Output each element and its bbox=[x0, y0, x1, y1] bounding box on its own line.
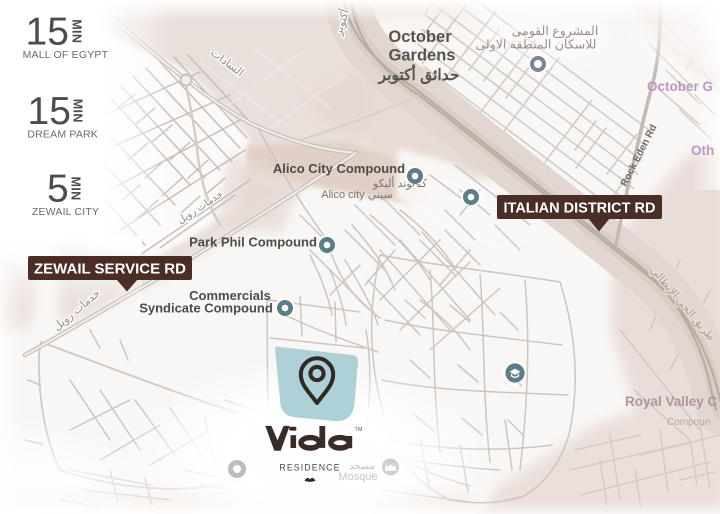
svg-text:October G: October G bbox=[647, 79, 713, 94]
svg-text:5: 5 bbox=[47, 168, 69, 211]
svg-text:15: 15 bbox=[28, 90, 71, 133]
svg-text:October: October bbox=[388, 28, 452, 46]
svg-text:MIN: MIN bbox=[69, 177, 83, 201]
svg-text:15: 15 bbox=[26, 10, 69, 53]
svg-text:MIN: MIN bbox=[69, 19, 83, 43]
svg-text:ZEWAIL CITY: ZEWAIL CITY bbox=[32, 206, 99, 218]
svg-text:Mosque: Mosque bbox=[338, 471, 377, 483]
svg-text:حدائق أكتوبر: حدائق أكتوبر bbox=[378, 63, 460, 85]
svg-text:MIN: MIN bbox=[70, 99, 84, 123]
svg-text:TM: TM bbox=[355, 427, 363, 433]
svg-text:Gardens: Gardens bbox=[389, 47, 456, 65]
svg-text:RESIDENCE: RESIDENCE bbox=[279, 463, 340, 473]
svg-text:ZEWAIL SERVICE RD: ZEWAIL SERVICE RD bbox=[34, 261, 186, 278]
svg-text:ITALIAN DISTRICT RD: ITALIAN DISTRICT RD bbox=[504, 201, 656, 217]
svg-text:MALL OF EGYPT: MALL OF EGYPT bbox=[23, 49, 109, 61]
svg-text:Park Phil Compound: Park Phil Compound bbox=[189, 235, 317, 250]
svg-text:Alico City Compound: Alico City Compound bbox=[273, 161, 405, 176]
svg-text:للاسكان المنطقه الاولى: للاسكان المنطقه الاولى bbox=[475, 38, 596, 53]
svg-text:DREAM PARK: DREAM PARK bbox=[27, 128, 98, 140]
svg-text:Oth: Oth bbox=[691, 143, 714, 158]
svg-text:Syndicate Compound: Syndicate Compound bbox=[139, 301, 273, 316]
svg-text:Royal Valley C: Royal Valley C bbox=[625, 394, 718, 409]
svg-text:Alico city سيني: Alico city سيني bbox=[321, 189, 393, 201]
svg-text:Compoun: Compoun bbox=[667, 417, 710, 428]
